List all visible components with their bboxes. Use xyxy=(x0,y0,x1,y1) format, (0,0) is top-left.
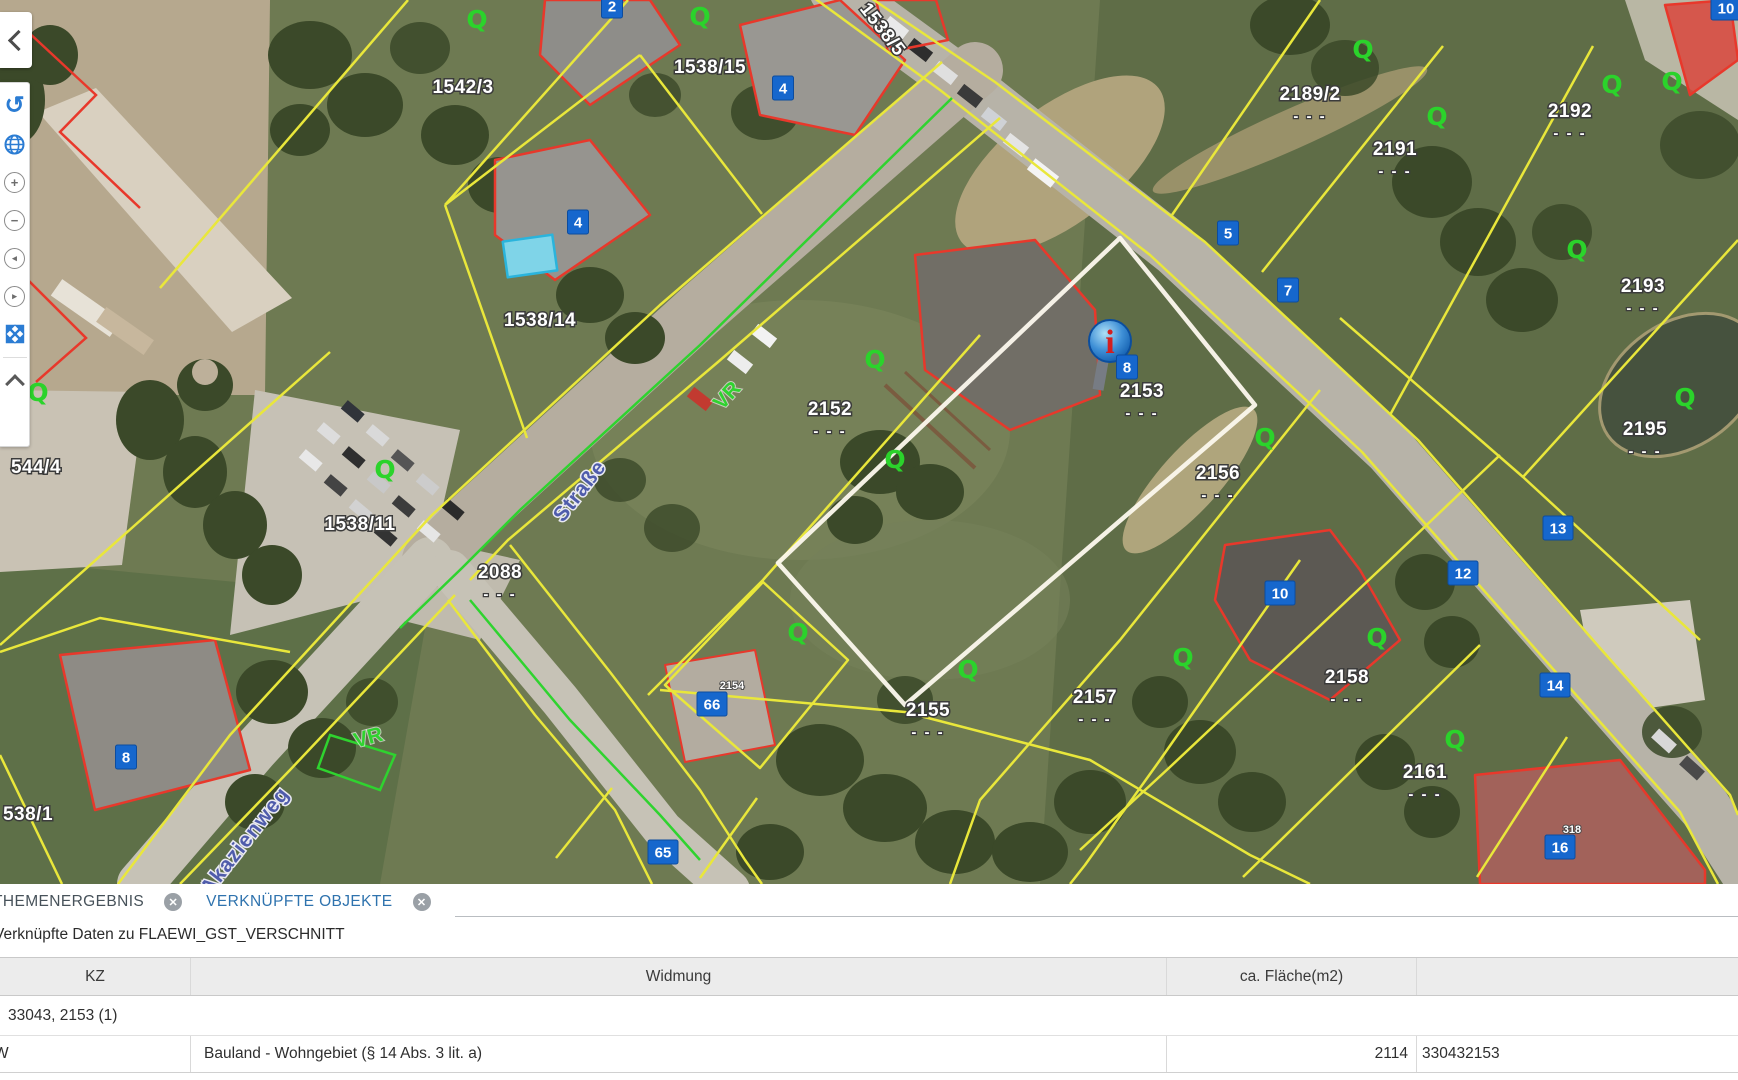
parcel-dashes: - - - xyxy=(1553,125,1586,142)
close-tab-verknuepfte-objekte-button[interactable]: ✕ xyxy=(413,893,431,911)
parcel-number-label: 2189/2 xyxy=(1279,84,1340,105)
svg-text:2: 2 xyxy=(608,0,616,16)
column-header-extra xyxy=(1417,958,1738,995)
land-use-symbol: Q xyxy=(1426,102,1447,131)
table-header-row: KZ Widmung ca. Fläche(m2) xyxy=(0,957,1738,996)
info-marker-glyph: i xyxy=(1105,324,1114,361)
parcel-dashes: - - - xyxy=(1408,786,1441,803)
chevron-left-icon xyxy=(7,29,28,50)
scroll-tools-up-button[interactable] xyxy=(2,362,28,400)
full-extent-button[interactable] xyxy=(2,315,28,353)
gis-application-window: i QQQQQQQQQQQQQQQQQQ 2445781013121416666… xyxy=(0,0,1738,1080)
parcel-dashes: - - - xyxy=(911,724,944,741)
building-number-label: 318 xyxy=(1563,824,1581,836)
map-toolbar: ↺ + − ◂ ▸ xyxy=(0,82,30,447)
toolbar-divider xyxy=(3,357,27,358)
house-number-badge[interactable]: 66 xyxy=(697,692,727,716)
building-number-label: 2154 xyxy=(720,680,745,692)
land-use-symbol: Q xyxy=(884,445,905,474)
land-use-symbol: Q xyxy=(864,345,885,374)
svg-text:65: 65 xyxy=(655,845,672,862)
house-number-badge[interactable]: 65 xyxy=(648,840,678,864)
parcel-dashes: - - - xyxy=(483,586,516,603)
house-number-badge[interactable]: 5 xyxy=(1218,221,1239,245)
parcel-number-label: 2191 xyxy=(1373,139,1417,160)
parcel-dashes: - - - xyxy=(1330,691,1363,708)
parcel-number-label: 2161 xyxy=(1403,762,1447,783)
svg-text:7: 7 xyxy=(1284,283,1292,300)
house-number-badge[interactable]: 7 xyxy=(1278,278,1299,302)
panel-subtitle: Verknüpfte Daten zu FLAEWI_GST_VERSCHNIT… xyxy=(0,926,345,944)
column-header-widmung: Widmung xyxy=(191,958,1167,995)
land-use-symbol: Q xyxy=(1661,67,1682,96)
svg-text:13: 13 xyxy=(1550,521,1567,538)
parcel-number-label: 2158 xyxy=(1325,667,1369,688)
parcel-number-label: 2152 xyxy=(808,399,852,420)
svg-text:66: 66 xyxy=(704,697,721,714)
land-use-symbol: Q xyxy=(1254,423,1275,452)
chevron-up-icon xyxy=(5,374,25,394)
column-header-flaeche: ca. Fläche(m2) xyxy=(1167,958,1417,995)
parcel-dashes: - - - xyxy=(1201,487,1234,504)
expand-arrows-icon xyxy=(4,323,26,345)
undo-button[interactable]: ↺ xyxy=(2,87,28,125)
svg-text:4: 4 xyxy=(574,215,583,232)
land-use-symbol: Q xyxy=(787,618,808,647)
parcel-number-label: 2157 xyxy=(1073,687,1117,708)
zoom-out-button[interactable]: − xyxy=(2,201,28,239)
arrow-left-icon: ◂ xyxy=(4,248,25,269)
cell-flaeche: 2114 xyxy=(1167,1036,1417,1072)
svg-text:8: 8 xyxy=(1123,360,1131,377)
svg-text:12: 12 xyxy=(1455,566,1472,583)
next-extent-button[interactable]: ▸ xyxy=(2,277,28,315)
undo-icon: ↺ xyxy=(4,94,24,118)
svg-text:10: 10 xyxy=(1718,1,1735,18)
land-use-symbol: Q xyxy=(466,5,487,34)
parcel-number-label: 1538/11 xyxy=(324,514,395,535)
house-number-badge[interactable]: 4 xyxy=(773,76,794,100)
parcel-number-label: 2153 xyxy=(1120,381,1164,402)
svg-text:8: 8 xyxy=(122,750,130,767)
previous-extent-button[interactable]: ◂ xyxy=(2,239,28,277)
parcel-dashes: - - - xyxy=(1626,300,1659,317)
land-use-symbol: Q xyxy=(1601,70,1622,99)
parcel-number-label: 544/4 xyxy=(11,457,61,478)
land-use-symbol: Q xyxy=(1674,383,1695,412)
svg-text:14: 14 xyxy=(1547,678,1564,695)
arrow-right-icon: ▸ xyxy=(4,286,25,307)
house-number-badge[interactable]: 8 xyxy=(1117,355,1138,379)
land-use-symbol: Q xyxy=(957,655,978,684)
land-use-symbol: Q xyxy=(689,2,710,31)
house-number-badge[interactable]: 16 xyxy=(1545,835,1575,859)
house-number-badge[interactable]: 14 xyxy=(1540,673,1570,697)
land-use-symbol: Q xyxy=(1444,725,1465,754)
land-use-symbol: Q xyxy=(1352,35,1373,64)
overview-map-button[interactable] xyxy=(2,125,28,163)
land-use-symbol: Q xyxy=(1366,623,1387,652)
parcel-number-label: 2193 xyxy=(1621,276,1665,297)
parcel-number-label: 1538/15 xyxy=(674,57,746,78)
results-panel: THEMENERGEBNIS ✕ VERKNÜPFTE OBJEKTE ✕ Ve… xyxy=(0,884,1738,1080)
parcel-number-label: 1542/3 xyxy=(432,77,493,98)
results-tab-bar: THEMENERGEBNIS ✕ VERKNÜPFTE OBJEKTE ✕ xyxy=(0,884,1738,920)
parcel-number-label: 2195 xyxy=(1623,419,1667,440)
svg-text:4: 4 xyxy=(779,81,788,98)
parcel-number-label: 1538/14 xyxy=(504,310,576,331)
parcel-number-label: 2155 xyxy=(906,700,950,721)
svg-text:16: 16 xyxy=(1552,840,1569,857)
zoom-out-icon: − xyxy=(4,210,25,231)
land-use-symbol: Q xyxy=(374,455,395,484)
cell-extra: 330432153 xyxy=(1417,1036,1738,1072)
house-number-badge[interactable]: 8 xyxy=(116,745,137,769)
zoom-in-icon: + xyxy=(4,172,25,193)
zoom-in-button[interactable]: + xyxy=(2,163,28,201)
parcel-number-label: 2156 xyxy=(1196,463,1240,484)
house-number-badge[interactable]: 10 xyxy=(1711,0,1738,20)
parcel-number-label: 2192 xyxy=(1548,101,1592,122)
tab-verknuepfte-objekte[interactable]: VERKNÜPFTE OBJEKTE xyxy=(206,893,392,911)
tab-themenergebnis[interactable]: THEMENERGEBNIS xyxy=(0,893,144,911)
svg-text:5: 5 xyxy=(1224,226,1232,243)
parcel-dashes: - - - xyxy=(1078,711,1111,728)
cell-kz: W xyxy=(0,1036,191,1072)
house-number-badge[interactable]: 4 xyxy=(568,210,589,234)
house-number-badge[interactable]: 2 xyxy=(602,0,623,18)
map-viewport[interactable]: i QQQQQQQQQQQQQQQQQQ 2445781013121416666… xyxy=(0,0,1738,884)
cell-widmung: Bauland - Wohngebiet (§ 14 Abs. 3 lit. a… xyxy=(191,1036,1167,1072)
parcel-dashes: - - - xyxy=(1125,405,1158,422)
parcel-dashes: - - - xyxy=(813,423,846,440)
column-header-kz: KZ xyxy=(0,958,191,995)
land-use-symbol: Q xyxy=(1566,235,1587,264)
map-canvas[interactable]: i QQQQQQQQQQQQQQQQQQ 2445781013121416666… xyxy=(0,0,1738,884)
land-use-symbol: Q xyxy=(1172,643,1193,672)
svg-text:10: 10 xyxy=(1272,586,1289,603)
house-number-badge[interactable]: 12 xyxy=(1448,561,1478,585)
parcel-number-label: 2088 xyxy=(478,562,522,583)
close-tab-themenergebnis-button[interactable]: ✕ xyxy=(164,893,182,911)
parcel-dashes: - - - xyxy=(1378,163,1411,180)
tab-bar-divider xyxy=(455,916,1738,917)
parcel-dashes: - - - xyxy=(1628,443,1661,460)
land-use-symbol: Q xyxy=(27,378,48,407)
parcel-number-label: 538/1 xyxy=(3,804,53,825)
globe-icon xyxy=(4,134,25,155)
table-row[interactable]: W Bauland - Wohngebiet (§ 14 Abs. 3 lit.… xyxy=(0,1036,1738,1073)
house-number-badge[interactable]: 13 xyxy=(1543,516,1573,540)
collapse-sidebar-button[interactable] xyxy=(0,12,32,68)
table-group-row[interactable]: 33043, 2153 (1) xyxy=(0,996,1738,1036)
attribute-table: KZ Widmung ca. Fläche(m2) 33043, 2153 (1… xyxy=(0,957,1738,1073)
parcel-dashes: - - - xyxy=(1293,108,1326,125)
house-number-badge[interactable]: 10 xyxy=(1265,581,1295,605)
